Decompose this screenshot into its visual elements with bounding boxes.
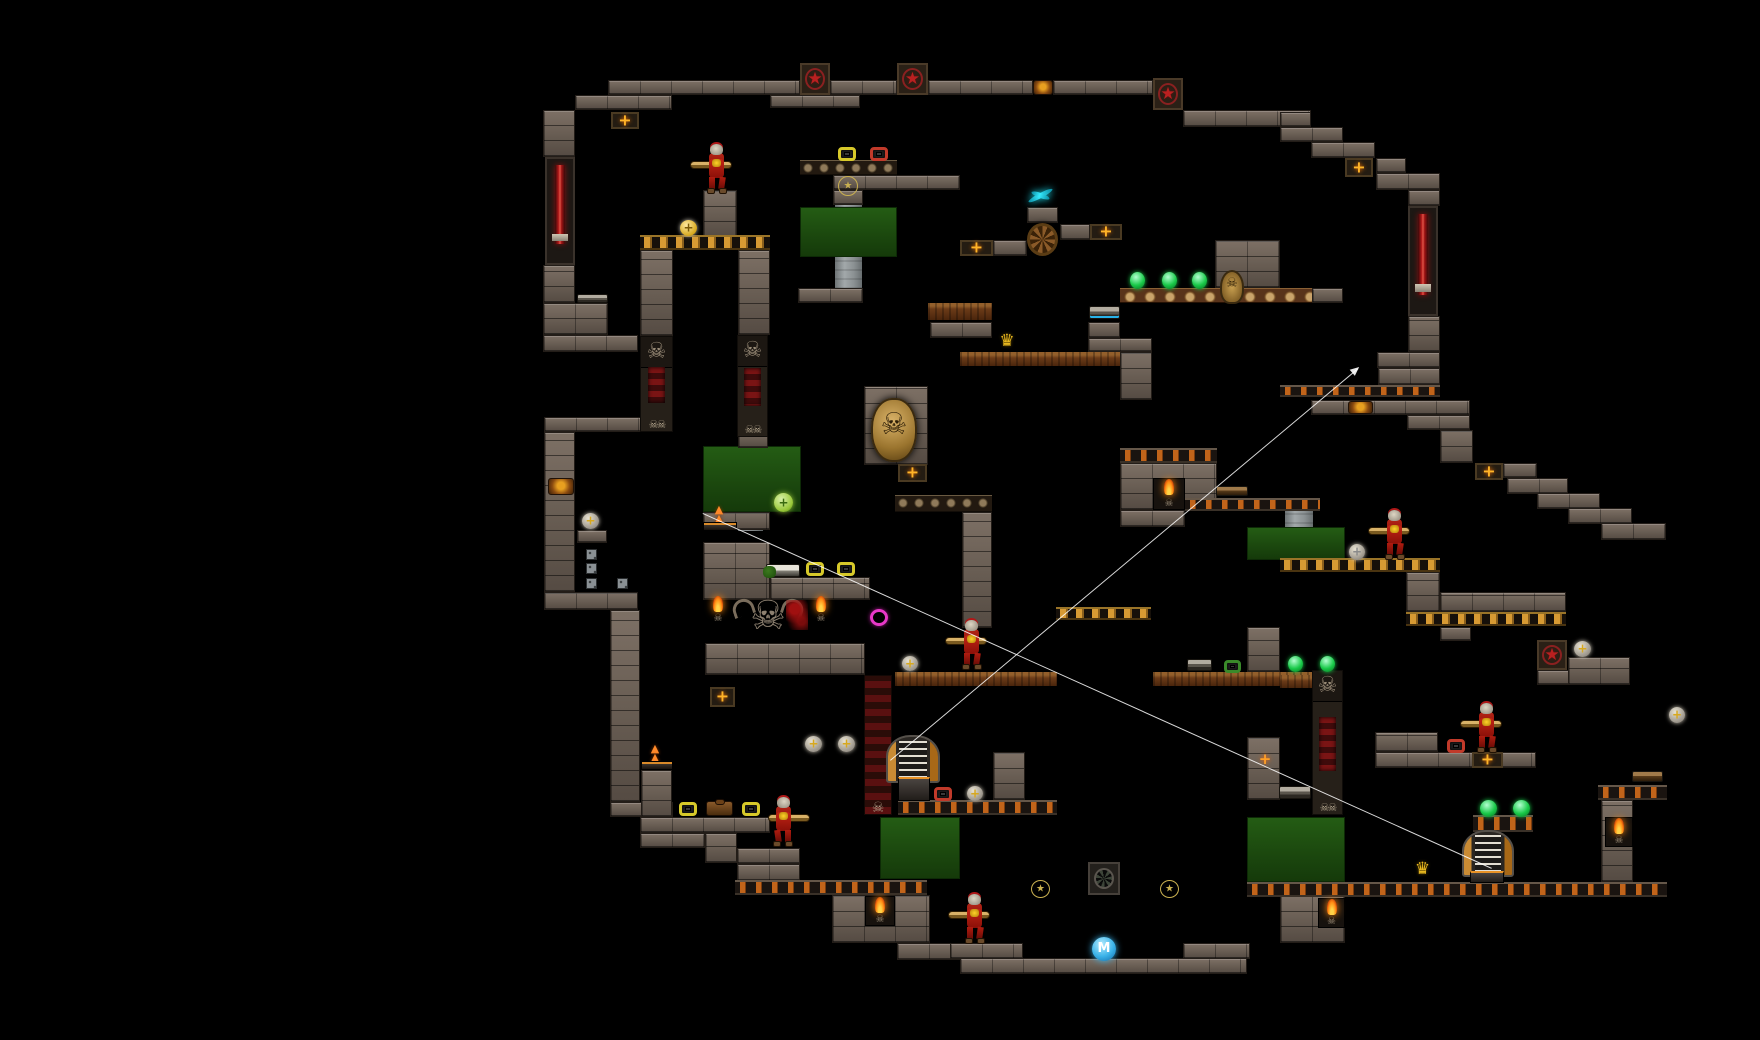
stone-wall-block [641, 770, 672, 817]
stone-wall-block [738, 250, 770, 335]
cross-orb-item[interactable] [805, 736, 822, 752]
stone-wall-block [1568, 657, 1630, 685]
skull-pillar [737, 335, 768, 437]
stone-wall-block [950, 943, 1023, 959]
dirt-platform [928, 303, 992, 320]
stone-wall-block [798, 288, 863, 303]
stone-wall-block [1377, 352, 1440, 368]
lava-grate-floor [735, 880, 927, 895]
level-map: ▲ ▲▲ ▲+♛♛M [0, 0, 1760, 1040]
imp-b1 [965, 938, 973, 944]
pentagram-block [897, 63, 928, 95]
teleporter-gate[interactable] [1462, 830, 1514, 877]
cross-orb-item[interactable] [582, 513, 599, 529]
cross-orb-item[interactable] [1669, 707, 1685, 723]
imp-chest [1390, 525, 1399, 533]
stone-wall-block [543, 265, 575, 303]
imp-head [1480, 703, 1493, 714]
health-cross-block[interactable] [1472, 752, 1503, 768]
stone-wall-block [544, 432, 575, 592]
stone-wall-block [640, 817, 770, 833]
chaingun-weapon[interactable] [1632, 771, 1663, 782]
stone-wall-block [1120, 510, 1185, 527]
blood-splatter [786, 600, 808, 630]
stone-wall-block [1503, 463, 1537, 478]
rocket-launcher-weapon[interactable] [1089, 306, 1120, 319]
pentagram-circle [1031, 880, 1050, 898]
stone-wall-block [1311, 400, 1470, 415]
magenta-ring-item[interactable] [870, 609, 888, 626]
stone-wall-block [1120, 352, 1152, 400]
imp-face-block [1033, 80, 1053, 95]
wheel-emblem [1027, 223, 1058, 256]
stone-wall-block [577, 530, 607, 543]
skull-row-floor [895, 495, 992, 512]
stone-wall-block [962, 512, 992, 628]
imp-b2 [773, 841, 781, 847]
sword-pillar [545, 157, 575, 265]
cross-orb-item[interactable] [1574, 641, 1591, 657]
green-gem[interactable] [1480, 800, 1497, 817]
health-cross-block[interactable] [960, 240, 993, 256]
silver-cross-orb[interactable] [1349, 544, 1365, 560]
green-door[interactable] [1247, 817, 1345, 882]
stone-wall-block [1601, 523, 1666, 540]
stone-wall-block [1440, 592, 1566, 612]
imp-chest [712, 159, 721, 167]
stone-wall-block [705, 643, 865, 675]
gold-grate-floor [1406, 612, 1566, 626]
stone-wall-block [1376, 158, 1406, 173]
stone-wall-block [640, 250, 673, 336]
stone-wall-block [1378, 368, 1440, 385]
red-ammo-box[interactable] [870, 147, 888, 161]
stone-wall-block [705, 833, 737, 863]
stone-wall-block [543, 110, 575, 157]
imp-b2 [1397, 554, 1405, 560]
imp-face-block [1348, 401, 1373, 414]
green-door[interactable] [800, 207, 897, 257]
imp-b1 [785, 841, 793, 847]
stone-wall-block [1247, 737, 1280, 800]
gold-shield-orb[interactable] [680, 220, 697, 236]
stone-wall-block [1312, 288, 1343, 303]
stone-wall-block [1440, 430, 1473, 463]
dirt-platform [1280, 675, 1312, 688]
lava-grate-floor [1598, 785, 1667, 800]
gear-block [1088, 862, 1120, 895]
wall-torch-icon [1153, 478, 1185, 510]
stone-wall-block [737, 848, 800, 864]
yellow-ammo-box[interactable] [679, 802, 697, 816]
green-gem[interactable] [1288, 656, 1303, 672]
imp-enemy[interactable] [1376, 510, 1414, 560]
yellow-ammo-box[interactable] [742, 802, 760, 816]
imp-b2 [719, 188, 727, 194]
stone-wall-block [1088, 322, 1120, 338]
imp-enemy[interactable] [698, 144, 736, 194]
stone-wall-block [770, 95, 860, 108]
imp-chest [1482, 718, 1491, 726]
imp-b2 [974, 664, 982, 670]
red-ammo-box[interactable] [934, 787, 952, 801]
green-gem[interactable] [1192, 272, 1207, 289]
stone-wall-block [1375, 732, 1438, 752]
gate-pedestal [898, 777, 930, 801]
lift-platform[interactable] [641, 761, 673, 770]
stone-wall-block [830, 80, 897, 95]
health-cross-block[interactable] [1090, 224, 1122, 240]
lava-grate-floor [1185, 498, 1320, 511]
backpack-item[interactable] [706, 801, 733, 816]
gold-grate-floor [1280, 558, 1440, 572]
stone-wall-block [543, 335, 638, 352]
yellow-ammo-box[interactable] [838, 147, 856, 161]
imp-enemy[interactable] [956, 894, 994, 944]
imp-b2 [977, 938, 985, 944]
wall-torch-icon [865, 896, 895, 926]
imp-b1 [962, 664, 970, 670]
lava-grate-floor [1247, 882, 1667, 897]
pentagram-circle [1160, 880, 1179, 898]
dirt-platform [960, 352, 1120, 366]
imp-b2 [1489, 747, 1497, 753]
wall-torch-icon [813, 596, 829, 624]
stone-wall-block [993, 240, 1027, 256]
switch-block[interactable] [586, 578, 597, 589]
switch-block[interactable] [586, 549, 597, 560]
m-sphere[interactable]: M [1092, 937, 1116, 961]
imp-head [1388, 510, 1401, 521]
stone-wall-block [703, 190, 737, 238]
cross-orb-item[interactable] [967, 786, 983, 801]
stone-wall-block [1183, 943, 1250, 959]
shotgun-weapon[interactable] [577, 294, 608, 303]
stone-wall-block [928, 80, 1033, 95]
switch-block[interactable] [617, 578, 628, 589]
gold-demon-head-item[interactable]: ♛ [1411, 861, 1434, 878]
pentagram-circle [838, 176, 858, 196]
green-door[interactable] [1247, 527, 1345, 560]
stone-wall-block [575, 95, 672, 110]
imp-head [710, 144, 723, 155]
imp-enemy[interactable] [1468, 703, 1506, 753]
imp-b1 [1385, 554, 1393, 560]
imp-head [777, 797, 790, 808]
stone-wall-block [1375, 752, 1536, 768]
lava-grate-floor [1120, 448, 1217, 463]
health-cross-block[interactable] [1345, 158, 1373, 177]
stone-wall-block [1407, 415, 1470, 430]
imp-head [965, 620, 978, 631]
gun-weapon[interactable] [1279, 786, 1311, 799]
pentagram-block [800, 63, 830, 95]
pentagram-block [1153, 78, 1183, 110]
stone-wall-block [1406, 572, 1440, 612]
gold-skull-emblem [871, 398, 917, 462]
stone-wall-block [1088, 338, 1152, 352]
imp-b1 [707, 188, 715, 194]
green-ammo-box[interactable] [1224, 660, 1241, 673]
pentagram-block [1537, 640, 1567, 670]
stone-wall-block [737, 864, 800, 881]
sword-pillar [1408, 206, 1438, 316]
stone-wall-block [993, 752, 1025, 800]
imp-b1 [1477, 747, 1485, 753]
gun-weapon[interactable] [1187, 659, 1212, 671]
lift-up-arrows-icon[interactable]: ▲ ▲ [645, 744, 665, 762]
cross-orb-item[interactable] [902, 656, 918, 671]
skull-row-floor [800, 160, 897, 175]
green-gem[interactable] [1320, 656, 1335, 672]
stone-wall-block [1027, 207, 1058, 223]
skull-pillar [640, 336, 673, 432]
imp-chest [779, 812, 788, 820]
skull-medallion [1220, 270, 1244, 304]
health-cross-block[interactable] [611, 112, 639, 129]
stone-wall-block [640, 833, 705, 848]
gate-pedestal [1470, 871, 1504, 883]
stone-wall-block [1408, 316, 1440, 352]
stone-wall-block [1507, 478, 1568, 494]
stone-wall-block [1376, 173, 1440, 190]
stone-wall-block [703, 542, 770, 600]
stone-wall-block [608, 80, 800, 95]
imp-enemy[interactable] [764, 797, 802, 847]
health-cross-block[interactable] [710, 687, 735, 707]
wall-torch-icon [1318, 898, 1345, 928]
chaingun-weapon[interactable] [1216, 486, 1248, 496]
imp-head [968, 894, 981, 905]
health-cross-block[interactable] [1475, 463, 1503, 480]
lava-grate-floor [898, 800, 1057, 815]
green-soul-orb[interactable] [774, 493, 793, 512]
plant-decor [763, 566, 776, 578]
health-cross-block[interactable] [898, 464, 927, 482]
stone-wall-block [1053, 80, 1153, 95]
stone-wall-block [1060, 224, 1090, 240]
green-gem[interactable] [1130, 272, 1145, 289]
teleporter-gate[interactable] [886, 735, 940, 783]
stone-wall-block [1247, 627, 1280, 672]
green-gem[interactable] [1162, 272, 1177, 289]
stone-wall-block [1280, 112, 1311, 127]
stone-wall-block [544, 592, 638, 610]
cyan-bird-sprite[interactable] [1024, 184, 1056, 204]
stone-wall-block [1280, 127, 1343, 142]
gold-grate-floor [640, 235, 770, 250]
stone-wall-block [1568, 508, 1632, 524]
imp-face-block [548, 478, 574, 495]
wall-torch-icon [710, 596, 726, 624]
wall-torch-icon [1605, 817, 1633, 847]
stone-wall-block [610, 610, 640, 802]
lava-grate-floor [1280, 385, 1440, 397]
stone-wall-block [1440, 627, 1471, 641]
dirt-platform [895, 672, 1057, 686]
stone-wall-block [930, 322, 992, 338]
stone-wall-block [1537, 493, 1600, 509]
stone-wall-block [543, 303, 608, 335]
imp-chest [970, 909, 979, 917]
green-gem[interactable] [1513, 800, 1530, 817]
red-ammo-box[interactable] [1447, 739, 1465, 753]
stone-wall-block [1408, 190, 1440, 206]
catacomb-floor [1120, 288, 1312, 303]
green-door[interactable] [880, 817, 960, 879]
gold-demon-head-item[interactable]: ♛ [996, 333, 1018, 352]
switch-block[interactable] [586, 563, 597, 574]
stone-wall-block [1311, 142, 1375, 158]
cross-orb-item[interactable] [838, 736, 855, 752]
